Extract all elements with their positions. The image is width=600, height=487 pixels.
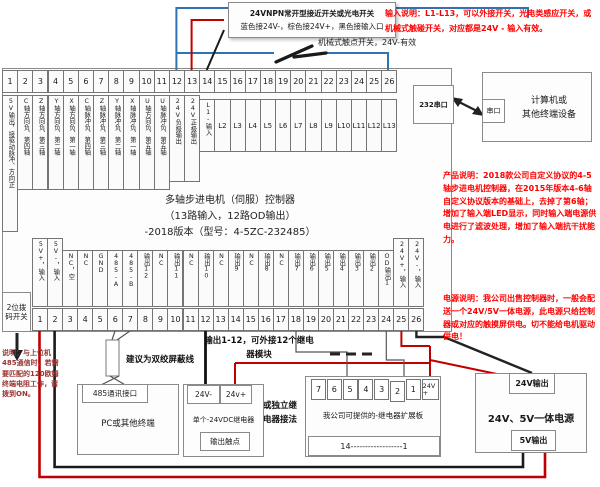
bottom-terminal-number: 20 — [318, 308, 334, 331]
wiring-diagram: 多轴步进电机（伺服）控制器 （13路输入，12路OD输出） -2018版本（型号… — [0, 0, 600, 487]
bottom-terminal-number-label: 26 — [411, 315, 421, 324]
bottom-terminal-label-label: NC — [157, 253, 164, 267]
top-terminal-number-label: 4 — [53, 77, 58, 86]
top-terminal-label-label: L4 — [249, 122, 257, 130]
relay-contact-label: 输出触点 — [210, 436, 240, 447]
bottom-terminal-label: 输出9 — [228, 250, 244, 307]
top-terminal-label-label: U轴脉冲负、第五轴 — [158, 98, 165, 155]
computer-name: 计算机或 其他终端设备 — [507, 94, 591, 122]
power-supply-box: 24V输出 24V、5V一体电源 5V输出 — [475, 373, 587, 453]
relay-board-terminal: 4 — [358, 379, 373, 400]
dip-note: 说明：与上位机485通信时，若需要匹配的120欧姆终端电阻工作，请拨到ON。 — [2, 348, 62, 399]
top-terminal-label-label: L11 — [353, 122, 366, 130]
bottom-terminal-number-label: 3 — [68, 315, 73, 324]
relay-board-terminal-label: 2 — [395, 387, 400, 396]
relay-board-terminal: 3 — [374, 379, 389, 400]
top-terminal-number: 13 — [184, 70, 200, 93]
computer-serial-label: 串口 — [487, 106, 501, 116]
top-terminal-label: L3 — [230, 99, 246, 152]
relay-board-terminal: 24V+ — [422, 379, 439, 400]
top-terminal-label: L4 — [245, 99, 261, 152]
bottom-terminal-number-label: 21 — [336, 315, 346, 324]
top-terminal-number: 16 — [230, 70, 246, 93]
top-terminal-number-label: 1 — [8, 77, 13, 86]
single-relay-name: 单个-24VDC继电器 — [184, 415, 263, 425]
top-terminal-number-label: 21 — [308, 77, 318, 86]
bottom-terminal-label: 输出12 — [137, 250, 153, 307]
relay-board-terminal-label: 4 — [363, 385, 368, 394]
bottom-terminal-label-label: 输出12 — [142, 253, 149, 280]
top-terminal-label-label: Z轴方向负、第三轴 — [37, 98, 44, 155]
top-terminal-label: L1-输入 — [199, 99, 215, 152]
bottom-terminal-number-label: 17 — [276, 315, 286, 324]
product-note: 产品说明：2018款公司自定义协议的4-5轴步进电机控制器，在2015年版本4-… — [443, 170, 599, 247]
bottom-terminal-label: 24V+，输入 — [393, 238, 409, 307]
power-note: 电源说明：我公司出售控制器时，一般会配送一个24V/5V一体电源，此电源只给控制… — [443, 293, 600, 344]
bottom-terminal-number: 1 — [32, 308, 48, 331]
top-terminal-number-label: 22 — [324, 77, 334, 86]
bottom-terminal-number: 22 — [348, 308, 364, 331]
top-terminal-number-label: 10 — [142, 77, 152, 86]
top-terminal-number-label: 14 — [202, 77, 212, 86]
bottom-terminal-number: 17 — [273, 308, 289, 331]
bottom-terminal-number-label: 24 — [381, 315, 391, 324]
bottom-terminal-number-label: 12 — [200, 315, 210, 324]
wire-485-top — [112, 331, 130, 340]
bottom-terminal-number-label: 19 — [306, 315, 316, 324]
top-terminal-label-label: L2 — [218, 122, 226, 130]
psu-5v-output: 5V输出 — [511, 430, 556, 451]
computer-name-line1: 计算机或 — [507, 94, 591, 108]
bottom-terminal-label: NC — [183, 250, 199, 307]
top-terminal-label-label: L3 — [233, 122, 241, 130]
bottom-terminal-number: 11 — [183, 308, 199, 331]
top-terminal-number-label: 11 — [157, 77, 167, 86]
top-terminal-label: L12 — [366, 99, 382, 152]
top-terminal-number: 9 — [123, 70, 139, 93]
top-terminal-label: Z轴方向负、第三轴 — [32, 95, 48, 190]
top-terminal-label-label: L12 — [368, 122, 381, 130]
twisted-pair-symbol — [106, 340, 119, 376]
top-terminal-number-label: 8 — [114, 77, 119, 86]
top-terminal-number: 8 — [108, 70, 124, 93]
relay-board-terminal-label: 5 — [348, 385, 353, 394]
bottom-terminal-number: 6 — [107, 308, 123, 331]
top-terminal-label: L7 — [290, 99, 306, 152]
bottom-terminal-label: NC — [152, 250, 168, 307]
relay-board-terminal-label: 6 — [332, 385, 337, 394]
single-relay-box: 24V- 24v+ 单个-24VDC继电器 输出触点 — [183, 384, 264, 457]
top-terminal-number: 18 — [260, 70, 276, 93]
bottom-terminal-label-label: 485-A — [112, 253, 119, 288]
bottom-terminal-number-label: 23 — [366, 315, 376, 324]
bottom-terminal-number-label: 14 — [231, 315, 241, 324]
top-terminal-number: 5 — [63, 70, 79, 93]
bottom-terminal-number: 5 — [92, 308, 108, 331]
top-terminal-number-label: 7 — [99, 77, 104, 86]
bottom-terminal-number-label: 9 — [158, 315, 163, 324]
relay-board-terminal-label: 3 — [379, 385, 384, 394]
top-terminal-label: Z轴脉冲负、第三轴 — [93, 95, 109, 190]
top-terminal-number: 11 — [154, 70, 170, 93]
bottom-terminal-number-label: 8 — [143, 315, 148, 324]
top-terminal-label: L8 — [305, 99, 321, 152]
bottom-terminal-number: 14 — [228, 308, 244, 331]
bottom-terminal-number-label: 18 — [291, 315, 301, 324]
bottom-terminal-label: 输出11 — [167, 250, 183, 307]
bottom-terminal-label: OD输出1 — [378, 250, 394, 307]
top-terminal-label-label: X轴脉冲负、第一轴 — [128, 98, 135, 155]
top-terminal-label-label: 24V负极输出 — [174, 98, 181, 144]
top-terminal-label-label: Y轴脉冲负、第二轴 — [113, 98, 120, 155]
relay-board-terminal: 6 — [327, 379, 342, 400]
sensor-note-box: 24VNPN常开型接近开关或光电开关 蓝色接24V-，棕色接24V+，黑色接输入… — [228, 2, 396, 38]
top-terminal-number-label: 12 — [172, 77, 182, 86]
top-terminal-label-label: 5V输出，接驱动脉冲、方向正 — [7, 98, 14, 188]
bottom-terminal-label-label: GND — [97, 253, 104, 274]
pc-terminal-name: PC或其他终端 — [78, 417, 178, 429]
psu-24v-output: 24V输出 — [509, 373, 555, 394]
relay-board-terminal: 1 — [406, 379, 421, 400]
bottom-terminal-label-label: 输出4 — [338, 253, 345, 273]
bottom-terminal-label: 24V-，输入 — [408, 238, 424, 307]
relay-board-terminal: 5 — [343, 379, 358, 400]
bottom-terminal-label-label: 输出8 — [262, 253, 269, 273]
top-terminal-label: L9 — [321, 99, 337, 152]
bottom-terminal-label-label: NC — [247, 253, 254, 267]
bottom-terminal-label-label: 输出5 — [323, 253, 330, 273]
bottom-terminal-label-label: NC，空 — [67, 253, 74, 280]
top-terminal-number: 23 — [336, 70, 352, 93]
bottom-terminal-label: 5V-，输入 — [47, 238, 63, 307]
top-terminal-label: 5V输出，接驱动脉冲、方向正 — [2, 95, 18, 232]
bottom-terminal-label: 485-B — [122, 250, 138, 307]
twisted-pair-note: 建议为双绞屏蔽线 — [126, 353, 194, 367]
relay-board-terminal-label: 24V+ — [423, 383, 438, 397]
top-terminal-number-label: 2 — [23, 77, 28, 86]
bottom-terminal-label-label: NC — [217, 253, 224, 267]
top-terminal-label: L10 — [336, 99, 352, 152]
bottom-terminal-number-label: 6 — [113, 315, 118, 324]
top-terminal-label: L11 — [351, 99, 367, 152]
top-terminal-label: L2 — [214, 99, 230, 152]
top-terminal-number-label: 18 — [263, 77, 273, 86]
top-terminal-label-label: L7 — [294, 122, 302, 130]
top-terminal-label-label: L13 — [383, 122, 396, 130]
top-terminal-label-label: Z轴脉冲负、第三轴 — [98, 98, 105, 155]
top-terminal-number: 2 — [17, 70, 33, 93]
top-terminal-label-label: X轴方向负、第一轴 — [67, 98, 74, 155]
top-terminal-number: 21 — [305, 70, 321, 93]
serial-232-port: 232串口 — [413, 85, 454, 124]
bottom-terminal-number-label: 16 — [261, 315, 271, 324]
top-terminal-number-label: 25 — [369, 77, 379, 86]
top-terminal-label-label: L1-输入 — [204, 102, 211, 136]
top-terminal-label: 24V正极输出 — [184, 95, 200, 182]
top-terminal-number-label: 24 — [354, 77, 364, 86]
bottom-terminal-label: 输出7 — [288, 250, 304, 307]
port-485-box: 485通讯接口 — [82, 384, 148, 403]
top-terminal-number-label: 19 — [278, 77, 288, 86]
sensor-note-line2: 蓝色接24V-，棕色接24V+，黑色接输入口 — [229, 20, 395, 33]
top-terminal-label-label: L10 — [337, 122, 350, 130]
top-terminal-number: 3 — [32, 70, 48, 93]
computer-serial-port: 串口 — [482, 99, 505, 123]
bottom-terminal-number: 18 — [288, 308, 304, 331]
top-terminal-label: Y轴方向负、第二轴 — [48, 95, 64, 190]
bottom-terminal-label: NC — [213, 250, 229, 307]
bottom-terminal-number-label: 13 — [216, 315, 226, 324]
bottom-terminal-number: 15 — [243, 308, 259, 331]
bottom-terminal-label-label: NC — [187, 253, 194, 267]
top-terminal-label-label: C轴脉冲负、第四轴 — [83, 98, 90, 155]
top-terminal-label-label: C轴方向负、第四轴 — [22, 98, 29, 155]
bottom-terminal-label: 485-A — [107, 250, 123, 307]
bottom-terminal-number: 19 — [303, 308, 319, 331]
bottom-terminal-label-label: 输出6 — [308, 253, 315, 273]
bottom-terminal-label-label: 输出11 — [172, 253, 179, 280]
relay-board-terminal: 2 — [390, 381, 405, 402]
top-terminal-number: 15 — [214, 70, 230, 93]
psu-24v-label: 24V输出 — [515, 378, 548, 389]
title-line2: （13路输入，12路OD输出） — [128, 209, 332, 225]
top-terminal-label: C轴脉冲负、第四轴 — [78, 95, 94, 190]
bottom-terminal-label-label: NC — [278, 253, 285, 267]
top-terminal-number: 26 — [381, 70, 397, 93]
top-terminal-number-label: 9 — [129, 77, 134, 86]
top-terminal-number: 6 — [78, 70, 94, 93]
bottom-terminal-label-label: 5V+，输入 — [37, 241, 44, 281]
relay-pos-terminal: 24v+ — [220, 385, 252, 404]
top-terminal-number-label: 23 — [339, 77, 349, 86]
title-line3: -2018版本（型号：4-5ZC-232485） — [128, 225, 332, 241]
bottom-terminal-number-label: 22 — [351, 315, 361, 324]
bottom-terminal-label: GND — [92, 250, 108, 307]
title-line1: 多轴步进电机（伺服）控制器 — [128, 193, 332, 209]
bottom-terminal-label: 输出5 — [318, 250, 334, 307]
top-terminal-number-label: 15 — [217, 77, 227, 86]
top-terminal-number-label: 26 — [384, 77, 394, 86]
top-terminal-label-label: L8 — [309, 122, 317, 130]
port-485-label: 485通讯接口 — [93, 388, 137, 399]
top-terminal-number-label: 17 — [248, 77, 258, 86]
serial-232-label: 232串口 — [419, 100, 448, 110]
bottom-terminal-number-label: 10 — [170, 315, 180, 324]
top-terminal-number: 10 — [139, 70, 155, 93]
bottom-terminal-number: 9 — [152, 308, 168, 331]
bottom-terminal-label-label: OD输出1 — [383, 253, 390, 287]
top-terminal-number: 22 — [321, 70, 337, 93]
top-terminal-label-label: U轴方向负、第五轴 — [143, 98, 150, 155]
top-terminal-label-label: L5 — [264, 122, 272, 130]
relay-board-range-label: 14------------------1 — [340, 442, 407, 451]
output-note: 输出1-12，可外接12个继电器模块 — [203, 334, 315, 362]
bottom-terminal-label: 输出2 — [363, 250, 379, 307]
computer-box: 串口 计算机或 其他终端设备 — [482, 72, 592, 142]
wire-red-sensor — [192, 20, 224, 70]
top-terminal-label: 24V负极输出 — [169, 95, 185, 182]
top-terminal-number-label: 3 — [38, 77, 43, 86]
top-terminal-label: L13 — [381, 99, 397, 152]
bottom-terminal-number: 8 — [137, 308, 153, 331]
bottom-terminal-label-label: 485-B — [127, 253, 134, 288]
dip-switch-label: 2位拨码开关 — [3, 303, 30, 321]
bottom-terminal-label-label: 输出10 — [202, 253, 209, 280]
bottom-terminal-number-label: 20 — [321, 315, 331, 324]
bottom-terminal-label: 输出3 — [348, 250, 364, 307]
top-terminal-label: C轴方向负、第四轴 — [17, 95, 33, 190]
top-terminal-number: 20 — [290, 70, 306, 93]
bottom-terminal-number: 23 — [363, 308, 379, 331]
bottom-terminal-number-label: 11 — [185, 315, 195, 324]
wire-blue-switch-right — [322, 53, 388, 70]
top-terminal-label: U轴方向负、第五轴 — [139, 95, 155, 190]
dip-switch-box: 2位拨码开关 — [2, 292, 31, 332]
relay-pos-label: 24v+ — [226, 390, 246, 399]
top-terminal-number: 24 — [351, 70, 367, 93]
top-terminal-label-label: Y轴方向负、第二轴 — [52, 98, 59, 155]
top-terminal-number-label: 20 — [293, 77, 303, 86]
top-terminal-label: L6 — [275, 99, 291, 152]
alt-relay-note: 或独立继电器接法 — [262, 400, 298, 427]
top-terminal-number-label: 13 — [187, 77, 197, 86]
relay-board-terminal-label: 1 — [411, 385, 416, 394]
bottom-terminal-label: NC，空 — [62, 250, 78, 307]
serial-link-line — [459, 102, 477, 111]
top-terminal-number-label: 6 — [83, 77, 88, 86]
relay-board-terminal: 7 — [311, 379, 326, 400]
bottom-terminal-label: 输出6 — [303, 250, 319, 307]
relay-board-name: 我公司可提供的-继电器扩展板 — [306, 410, 440, 421]
bottom-terminal-number: 21 — [333, 308, 349, 331]
top-terminal-label: X轴方向负、第一轴 — [63, 95, 79, 190]
bottom-terminal-number-label: 25 — [396, 315, 406, 324]
bottom-terminal-number: 2 — [47, 308, 63, 331]
top-terminal-number-label: 16 — [233, 77, 243, 86]
bottom-terminal-label-label: 24V-，输入 — [413, 241, 420, 288]
sensor-note-line1: 24VNPN常开型接近开关或光电开关 — [229, 7, 395, 20]
top-terminal-label: U轴脉冲负、第五轴 — [154, 95, 170, 190]
bottom-terminal-number: 4 — [77, 308, 93, 331]
psu-name: 24V、5V一体电源 — [476, 410, 586, 425]
bottom-terminal-label-label: 5V-，输入 — [52, 241, 59, 281]
top-terminal-number: 19 — [275, 70, 291, 93]
relay-board-bottom: 14------------------1 — [308, 436, 440, 456]
bottom-terminal-label: 5V+，输入 — [32, 238, 48, 307]
bottom-terminal-label: 输出4 — [333, 250, 349, 307]
top-terminal-number: 14 — [199, 70, 215, 93]
top-terminal-label-label: L6 — [279, 122, 287, 130]
bottom-terminal-label-label: 输出9 — [232, 253, 239, 273]
bottom-terminal-label: 输出10 — [198, 250, 214, 307]
bottom-terminal-label-label: 输出7 — [293, 253, 300, 273]
bottom-terminal-label: 输出8 — [258, 250, 274, 307]
top-terminal-label-label: L9 — [324, 122, 332, 130]
controller-title: 多轴步进电机（伺服）控制器 （13路输入，12路OD输出） -2018版本（型号… — [128, 193, 332, 241]
psu-5v-label: 5V输出 — [520, 435, 548, 446]
relay-neg-label: 24V- — [195, 390, 212, 399]
top-terminal-label-label: 24V正极输出 — [189, 98, 196, 144]
bottom-terminal-number: 24 — [378, 308, 394, 331]
mech-switch-label: 机械式触点开关，24V-有效 — [318, 37, 416, 48]
bottom-terminal-number-label: 7 — [128, 315, 133, 324]
top-terminal-number: 7 — [93, 70, 109, 93]
top-terminal-number: 1 — [2, 70, 18, 93]
input-note: 输入说明：L1-L13，可以外接开关，光电类感应开关，或机械式触碰开关，对应都是… — [385, 7, 597, 36]
bottom-terminal-number: 16 — [258, 308, 274, 331]
top-terminal-number: 17 — [245, 70, 261, 93]
bottom-terminal-number: 10 — [167, 308, 183, 331]
bottom-terminal-label: NC — [77, 250, 93, 307]
top-terminal-label: L5 — [260, 99, 276, 152]
top-terminal-label: X轴脉冲负、第一轴 — [123, 95, 139, 190]
top-terminal-label: Y轴脉冲负、第二轴 — [108, 95, 124, 190]
bottom-terminal-number: 25 — [393, 308, 409, 331]
bottom-terminal-number-label: 1 — [37, 315, 42, 324]
bottom-terminal-number-label: 4 — [83, 315, 88, 324]
top-terminal-number: 12 — [169, 70, 185, 93]
bottom-terminal-number: 12 — [198, 308, 214, 331]
bottom-terminal-label-label: 输出3 — [353, 253, 360, 273]
bottom-terminal-label-label: NC — [82, 253, 89, 267]
bottom-terminal-number-label: 15 — [246, 315, 256, 324]
bottom-terminal-label: NC — [273, 250, 289, 307]
relay-neg-terminal: 24V- — [187, 385, 220, 404]
top-terminal-number: 25 — [366, 70, 382, 93]
top-terminal-number: 4 — [48, 70, 64, 93]
bottom-terminal-number: 26 — [408, 308, 424, 331]
wire-black-sensor — [207, 30, 224, 70]
bottom-terminal-number: 13 — [213, 308, 229, 331]
bottom-terminal-number-label: 5 — [98, 315, 103, 324]
bottom-terminal-number: 3 — [62, 308, 78, 331]
bottom-terminal-label: NC — [243, 250, 259, 307]
bottom-terminal-label-label: 24V+，输入 — [398, 241, 405, 288]
bottom-terminal-number-label: 2 — [53, 315, 58, 324]
top-terminal-number-label: 5 — [68, 77, 73, 86]
relay-board-terminal-label: 7 — [316, 385, 321, 394]
computer-name-line2: 其他终端设备 — [507, 108, 591, 122]
relay-expansion-board: 765432124V+ 我公司可提供的-继电器扩展板 14-----------… — [305, 376, 441, 457]
bottom-terminal-label-label: 输出2 — [368, 253, 375, 273]
bottom-terminal-number: 7 — [122, 308, 138, 331]
relay-contact-box: 输出触点 — [200, 432, 250, 451]
